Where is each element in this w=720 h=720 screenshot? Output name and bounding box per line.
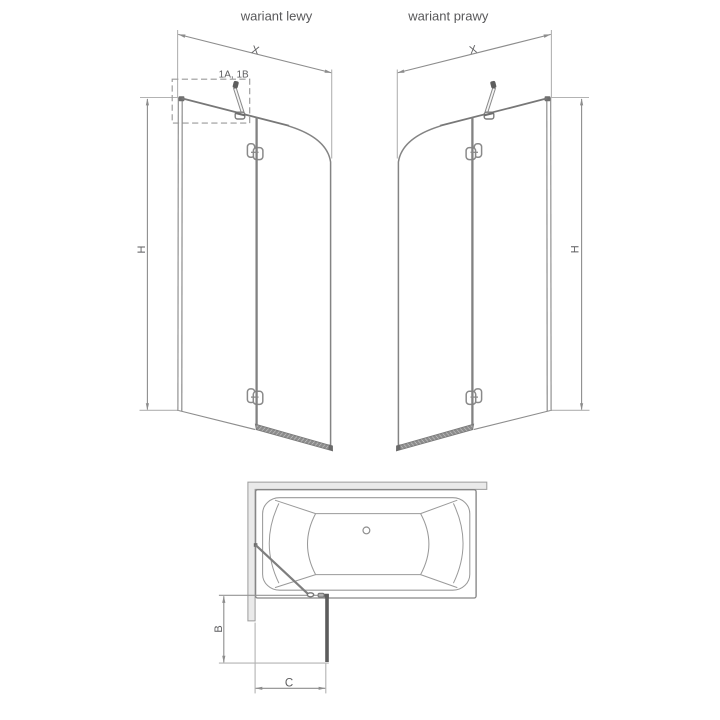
svg-text:H: H: [570, 245, 582, 253]
svg-text:wariant prawy: wariant prawy: [407, 9, 489, 24]
svg-text:1A, 1B: 1A, 1B: [219, 70, 249, 81]
svg-text:C: C: [285, 678, 293, 690]
svg-text:B: B: [213, 625, 225, 632]
svg-text:H: H: [136, 245, 148, 253]
svg-text:wariant lewy: wariant lewy: [240, 9, 313, 24]
